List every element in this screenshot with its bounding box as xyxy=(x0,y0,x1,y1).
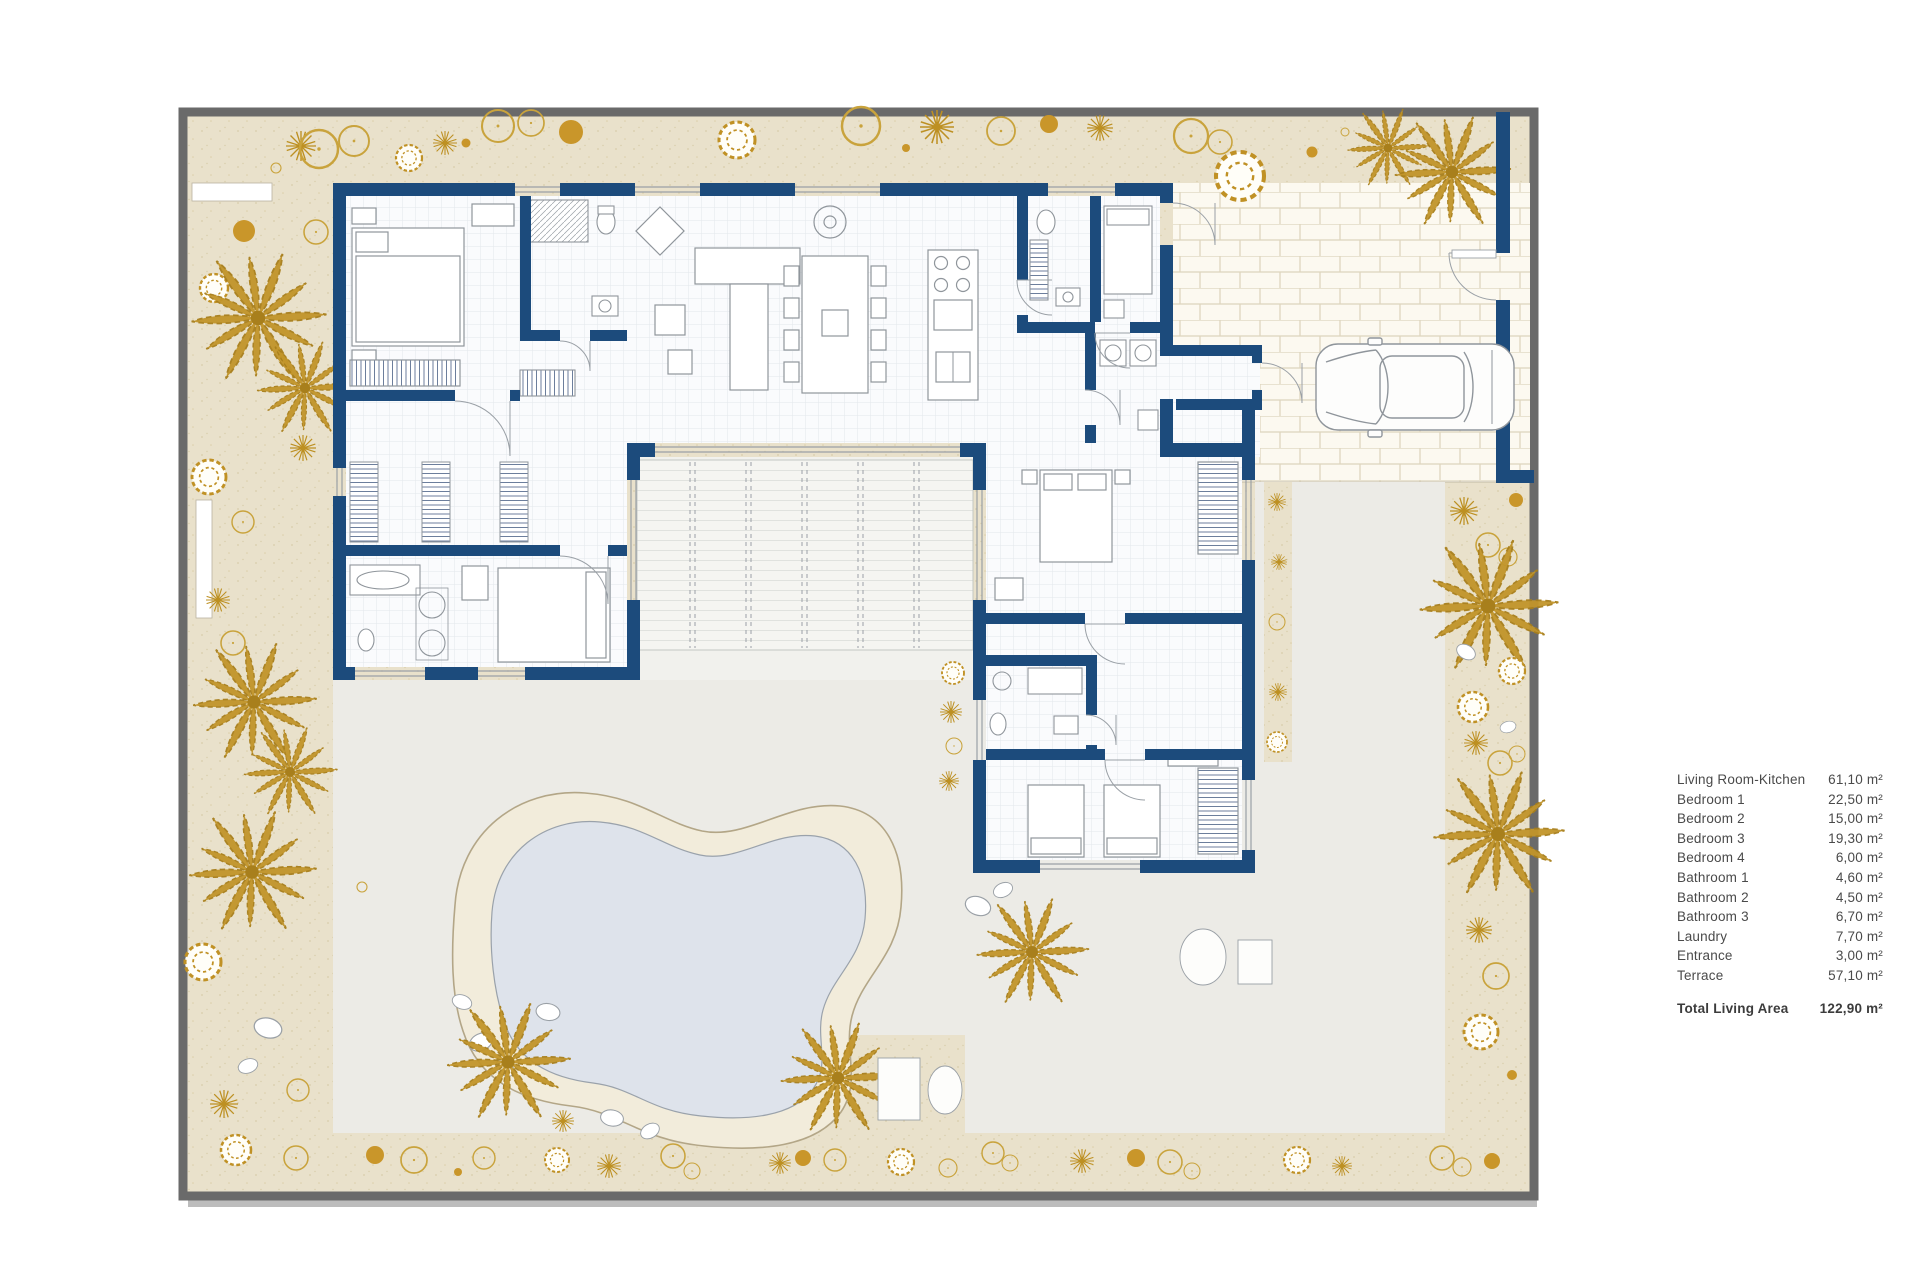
legend-value: 3,00 m² xyxy=(1836,946,1883,966)
floor-plan-drawing xyxy=(0,0,1920,1280)
legend-row: Bathroom 24,50 m² xyxy=(1677,888,1883,908)
wardrobe xyxy=(1198,462,1238,554)
legend-label: Bathroom 1 xyxy=(1677,868,1749,888)
legend-value: 7,70 m² xyxy=(1836,927,1883,947)
garden-pocket xyxy=(1264,482,1292,762)
legend-row: Bedroom 319,30 m² xyxy=(1677,829,1883,849)
planter xyxy=(878,1058,920,1120)
plant-dot xyxy=(559,120,583,144)
dressing-room xyxy=(350,462,528,542)
wardrobe xyxy=(350,360,460,386)
legend-label: Bedroom 3 xyxy=(1677,829,1745,849)
legend-row: Bathroom 36,70 m² xyxy=(1677,907,1883,927)
legend-value: 61,10 m² xyxy=(1828,770,1883,790)
legend-total-value: 122,90 m² xyxy=(1820,999,1883,1019)
legend-label: Bathroom 3 xyxy=(1677,907,1749,927)
kitchen-island xyxy=(928,250,978,400)
legend-label: Living Room-Kitchen xyxy=(1677,770,1805,790)
legend-row: Bedroom 215,00 m² xyxy=(1677,809,1883,829)
floor-plan-sheet: Living Room-Kitchen61,10 m² Bedroom 122,… xyxy=(0,0,1920,1280)
legend-row: Terrace57,10 m² xyxy=(1677,966,1883,986)
legend-value: 4,50 m² xyxy=(1836,888,1883,908)
legend-label: Bedroom 1 xyxy=(1677,790,1745,810)
legend-total-row: Total Living Area122,90 m² xyxy=(1677,999,1883,1019)
legend-label: Bedroom 4 xyxy=(1677,848,1745,868)
legend-row: Living Room-Kitchen61,10 m² xyxy=(1677,770,1883,790)
legend-label: Terrace xyxy=(1677,966,1723,986)
legend-row: Bedroom 46,00 m² xyxy=(1677,848,1883,868)
planter xyxy=(192,183,272,201)
legend-row: Bathroom 14,60 m² xyxy=(1677,868,1883,888)
legend-label: Bathroom 2 xyxy=(1677,888,1749,908)
wardrobe xyxy=(520,370,575,396)
legend-value: 15,00 m² xyxy=(1828,809,1883,829)
legend-total-label: Total Living Area xyxy=(1677,999,1788,1019)
legend-value: 19,30 m² xyxy=(1828,829,1883,849)
legend-value: 4,60 m² xyxy=(1836,868,1883,888)
stairs-deck xyxy=(637,460,973,650)
legend-row: Bedroom 122,50 m² xyxy=(1677,790,1883,810)
legend-value: 22,50 m² xyxy=(1828,790,1883,810)
legend-row: Entrance3,00 m² xyxy=(1677,946,1883,966)
legend-value: 57,10 m² xyxy=(1828,966,1883,986)
legend-value: 6,70 m² xyxy=(1836,907,1883,927)
wardrobe xyxy=(1198,768,1238,854)
legend-label: Entrance xyxy=(1677,946,1733,966)
legend-label: Laundry xyxy=(1677,927,1727,947)
area-legend: Living Room-Kitchen61,10 m² Bedroom 122,… xyxy=(1677,770,1883,1018)
car xyxy=(1316,338,1514,437)
legend-row: Laundry7,70 m² xyxy=(1677,927,1883,947)
legend-value: 6,00 m² xyxy=(1836,848,1883,868)
legend-label: Bedroom 2 xyxy=(1677,809,1745,829)
shower xyxy=(526,200,588,242)
